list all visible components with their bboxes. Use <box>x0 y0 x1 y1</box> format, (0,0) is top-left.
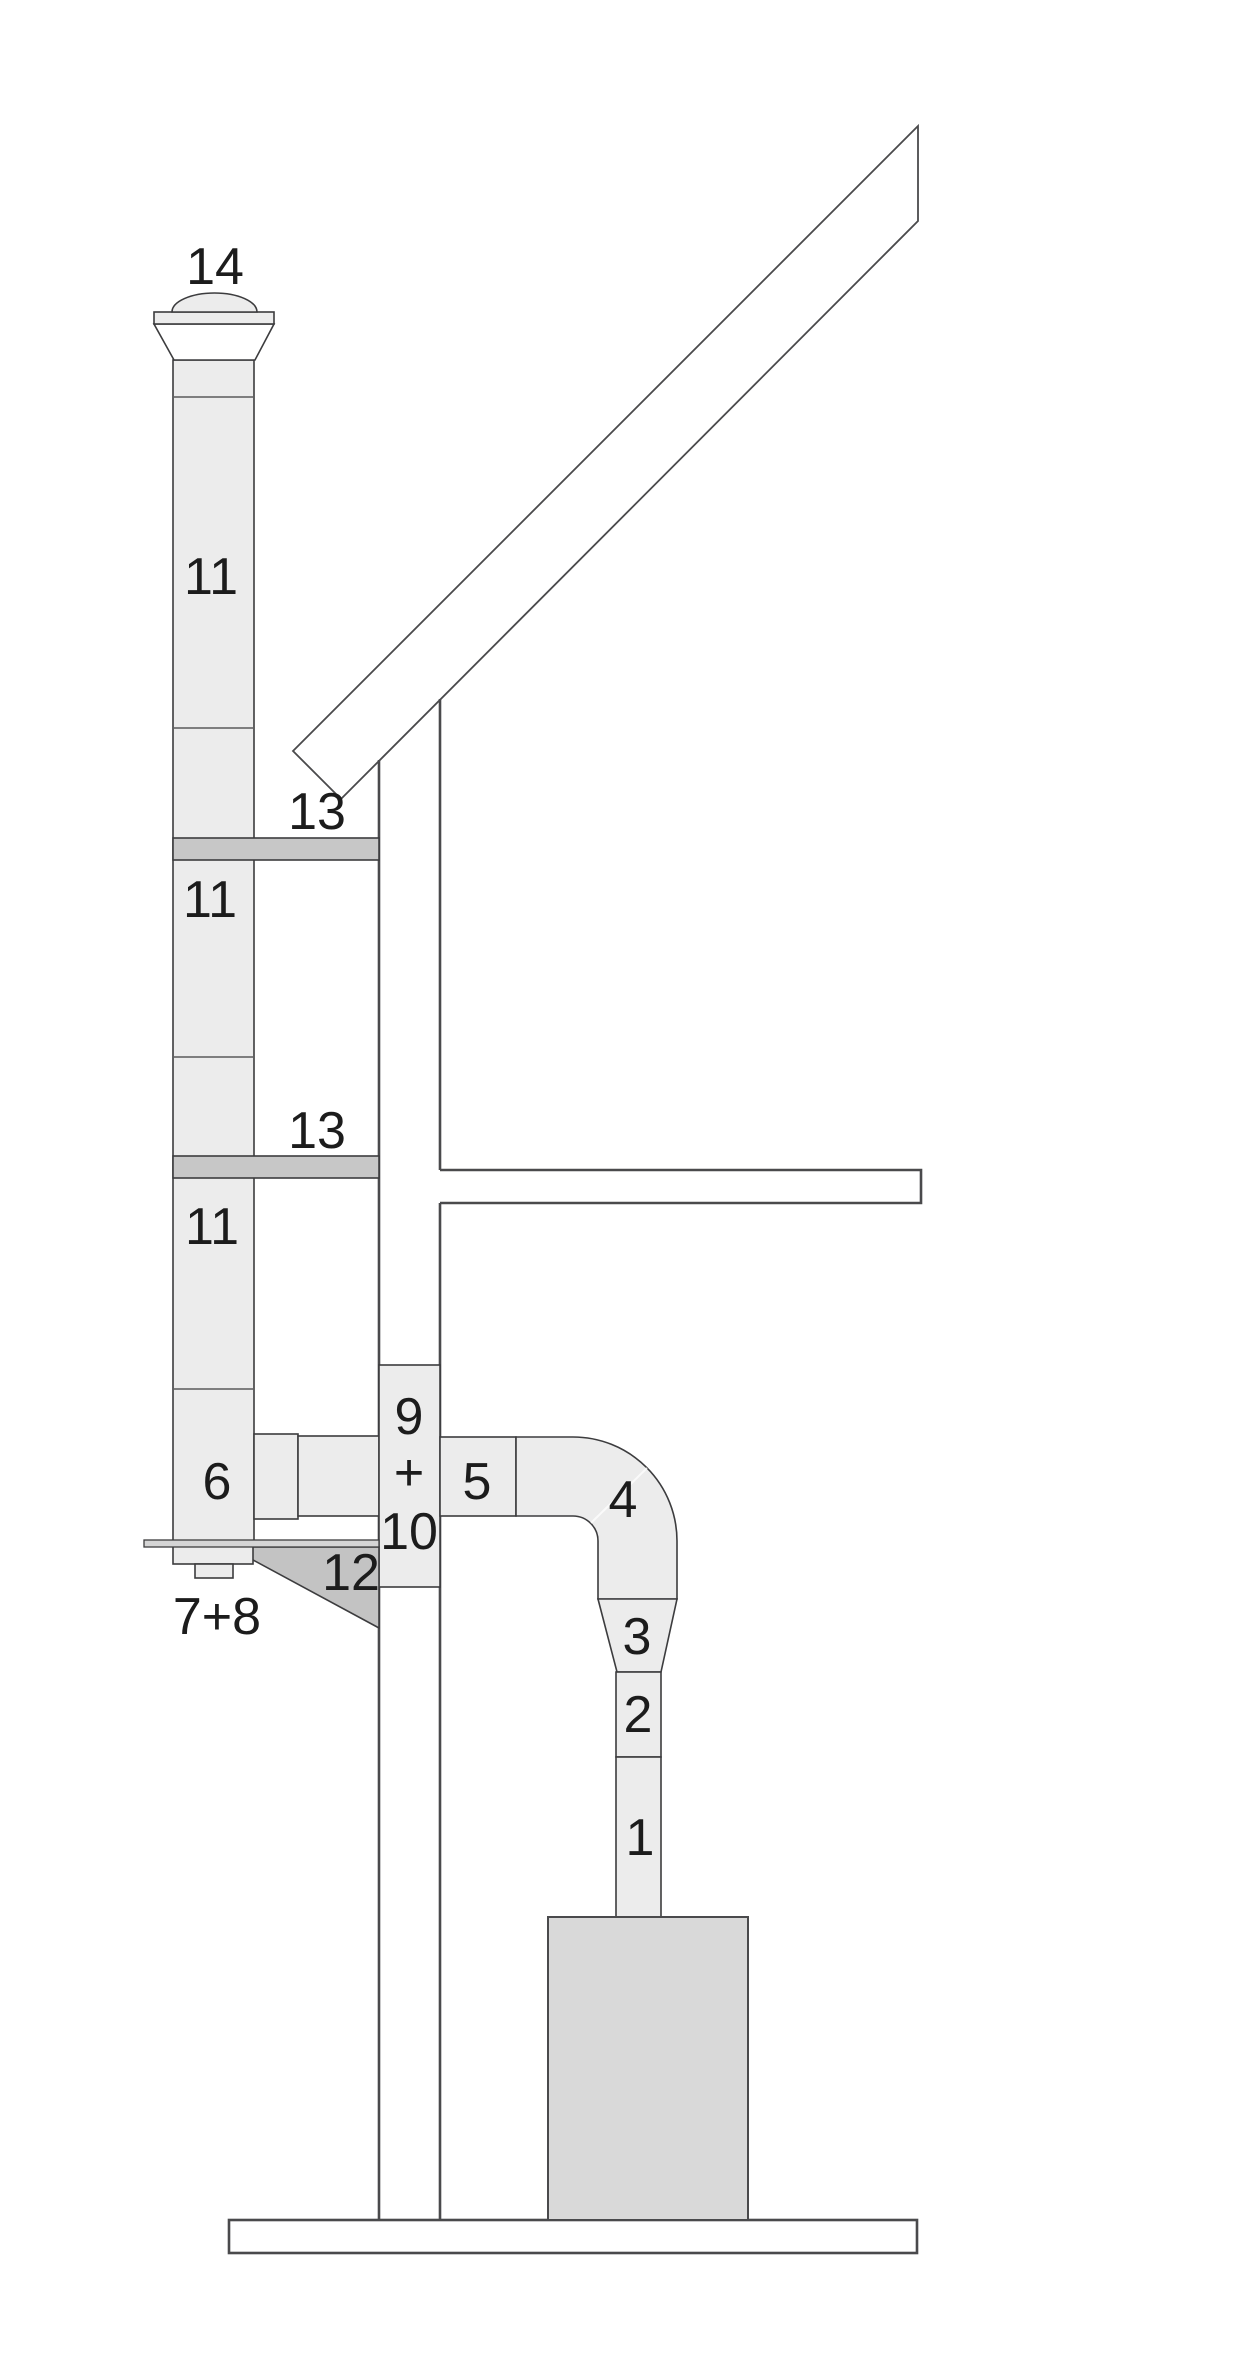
part-label-10: 10 <box>380 1506 438 1558</box>
part-label-9: 9 <box>395 1391 424 1443</box>
rain-cap-skirt <box>154 324 274 360</box>
part-label-14: 14 <box>186 241 244 293</box>
part-label-13b: 13 <box>288 1105 346 1157</box>
part-label-plus: + <box>394 1447 424 1499</box>
floor-slab <box>229 2220 917 2253</box>
tee-outlet-socket <box>254 1434 298 1519</box>
part-label-3: 3 <box>623 1611 652 1663</box>
part-label-1: 1 <box>626 1812 655 1864</box>
part-label-13a: 13 <box>288 786 346 838</box>
part-label-11a: 11 <box>184 551 238 603</box>
rain-cap-plate <box>154 312 274 324</box>
roof-slope <box>293 126 918 799</box>
part-label-5: 5 <box>463 1456 492 1508</box>
part-label-4: 4 <box>609 1474 638 1526</box>
wall-bracket-lower <box>173 1156 379 1178</box>
part-label-11c: 11 <box>185 1201 239 1253</box>
part-label-2: 2 <box>624 1689 653 1741</box>
wall-connector-pipe <box>298 1436 379 1516</box>
part-label-11b: 11 <box>183 874 237 926</box>
ceiling-slab <box>440 1170 921 1203</box>
part-label-12: 12 <box>322 1547 380 1599</box>
condensate-drain-stub <box>173 1546 253 1564</box>
wall-bracket-upper <box>173 838 379 860</box>
boiler-unit <box>548 1917 748 2220</box>
chimney-stack-pipe <box>173 360 254 1541</box>
part-label-6: 6 <box>203 1456 232 1508</box>
condensate-drain-cap <box>195 1564 233 1578</box>
diagram-canvas <box>0 0 1240 2363</box>
flue-installation-diagram: 14 11 13 11 13 11 9 + 10 6 5 4 12 7+8 3 … <box>0 0 1240 2363</box>
part-label-7-8: 7+8 <box>173 1591 261 1643</box>
